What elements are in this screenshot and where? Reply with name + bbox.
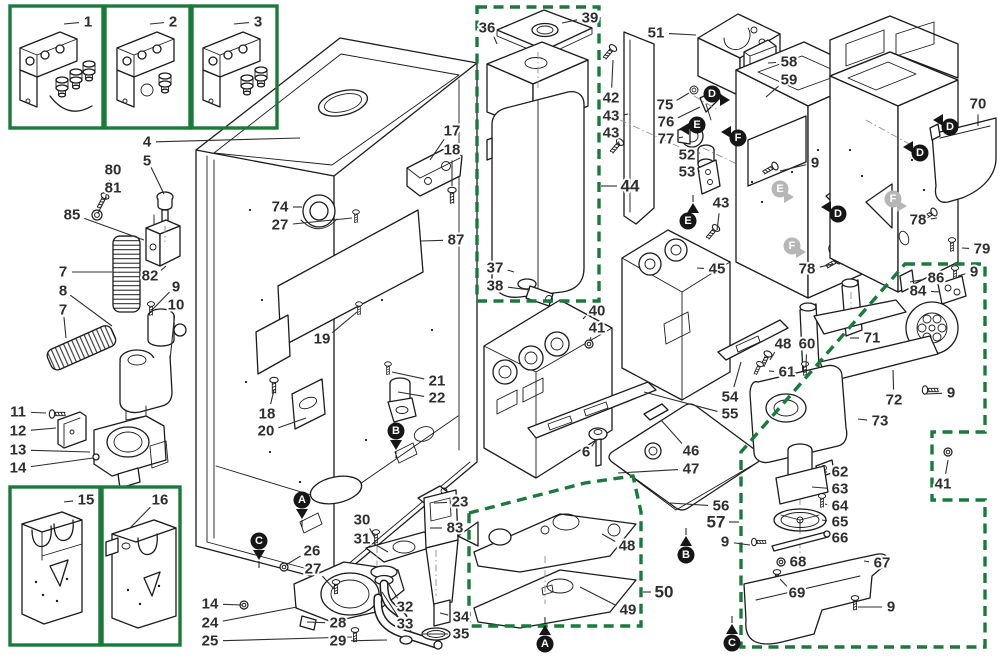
part-label-44: 44: [621, 177, 640, 196]
part-label-23: 23: [452, 494, 469, 511]
dispenser-tower-16: [106, 520, 176, 628]
part-label-20: 20: [258, 423, 275, 440]
part-label-50: 50: [655, 583, 674, 602]
part-label-11: 11: [10, 404, 26, 421]
part-label-82: 82: [142, 268, 159, 285]
leader-line: [421, 240, 443, 241]
part-label-86: 86: [928, 270, 945, 287]
ref-marker-letter: B: [392, 425, 400, 437]
part-label-29: 29: [330, 633, 347, 650]
part-label-14: 14: [10, 460, 27, 477]
ref-marker-letter: E: [684, 215, 691, 227]
leader-line: [307, 622, 325, 623]
leader-line: [925, 393, 942, 394]
part-label-59: 59: [781, 72, 798, 89]
part-label-4: 4: [143, 134, 152, 151]
part-label-43: 43: [603, 108, 620, 125]
part-label-45: 45: [709, 261, 726, 278]
ref-marker-letter: F: [789, 240, 796, 252]
part-label-70: 70: [970, 96, 987, 113]
part-label-79: 79: [974, 241, 991, 258]
part-label-71: 71: [864, 330, 881, 347]
leader-line: [893, 370, 894, 390]
ref-marker-letter: C: [255, 535, 263, 547]
part-label-75: 75: [657, 97, 674, 114]
part-label-49: 49: [620, 602, 637, 619]
part-label-26: 26: [304, 543, 321, 560]
part-label-43: 43: [713, 195, 730, 212]
part-label-1: 1: [84, 14, 92, 31]
ref-marker-letter: E: [776, 183, 783, 195]
part-label-3: 3: [254, 14, 262, 31]
part-label-78: 78: [799, 261, 816, 278]
ref-marker-letter: A: [541, 638, 549, 650]
part-label-19: 19: [314, 331, 331, 348]
part-label-25: 25: [202, 633, 219, 650]
part-label-18: 18: [259, 406, 276, 423]
part-label-10: 10: [168, 297, 185, 314]
part-label-9: 9: [887, 599, 895, 616]
part-label-69: 69: [789, 585, 806, 602]
ref-marker-letter: A: [298, 494, 306, 506]
part-label-31: 31: [354, 531, 371, 548]
ref-marker-letter: E: [693, 119, 700, 131]
part-label-85: 85: [64, 207, 81, 224]
part-label-81: 81: [105, 180, 122, 197]
part-label-13: 13: [10, 442, 27, 459]
part-label-9: 9: [811, 155, 819, 172]
part-label-41: 41: [935, 476, 952, 493]
part-label-48: 48: [775, 336, 792, 353]
part-label-35: 35: [453, 626, 470, 643]
part-label-34: 34: [453, 609, 470, 626]
part-label-87: 87: [448, 232, 465, 249]
part-label-27: 27: [272, 217, 289, 234]
part-label-30: 30: [354, 512, 371, 529]
ref-marker-letter: F: [890, 193, 897, 205]
part-label-15: 15: [78, 492, 95, 509]
leader-line: [223, 604, 242, 605]
part-label-36: 36: [479, 20, 496, 37]
part-label-62: 62: [832, 464, 849, 481]
part-label-42: 42: [603, 90, 620, 107]
part-label-9: 9: [172, 279, 180, 296]
part-label-38: 38: [487, 278, 504, 295]
part-label-18: 18: [444, 142, 461, 159]
part-label-32: 32: [397, 599, 414, 616]
part-label-80: 80: [105, 162, 122, 179]
ref-marker-letter: D: [834, 208, 842, 220]
part-label-52: 52: [679, 147, 696, 164]
part-label-54: 54: [722, 389, 739, 406]
ref-marker-letter: F: [735, 132, 742, 144]
part-label-58: 58: [781, 54, 798, 71]
dispenser-tower-15: [22, 512, 82, 624]
part-label-12: 12: [10, 423, 27, 440]
part-label-5: 5: [143, 153, 151, 170]
part-label-16: 16: [152, 492, 169, 509]
part-label-66: 66: [832, 530, 849, 547]
leader-line: [931, 291, 940, 292]
part-label-33: 33: [397, 616, 414, 633]
part-label-78: 78: [910, 212, 927, 229]
part-label-51: 51: [648, 25, 665, 42]
ref-marker-letter: B: [682, 549, 690, 561]
part-label-6: 6: [582, 444, 590, 461]
ref-marker-letter: D: [708, 88, 716, 100]
part-label-57: 57: [707, 513, 726, 532]
part-label-48: 48: [619, 538, 636, 555]
part-label-47: 47: [683, 461, 700, 478]
part-label-14: 14: [202, 596, 219, 613]
part-label-41: 41: [589, 320, 606, 337]
part-label-9: 9: [721, 534, 729, 551]
leader-line: [825, 504, 827, 505]
part-label-64: 64: [832, 498, 849, 515]
part-label-46: 46: [683, 443, 700, 460]
part-label-17: 17: [444, 123, 461, 140]
part-label-2: 2: [169, 14, 177, 31]
parts-diagram-canvas: 1234580818582787910111213141516171874278…: [0, 0, 1000, 658]
ref-marker-letter: C: [728, 637, 736, 649]
part-label-77: 77: [658, 131, 675, 148]
part-label-8: 8: [59, 283, 67, 300]
leader-line: [768, 62, 776, 63]
part-label-53: 53: [679, 164, 696, 181]
part-label-65: 65: [832, 514, 849, 531]
part-label-73: 73: [872, 413, 889, 430]
part-label-21: 21: [429, 373, 446, 390]
leader-line: [679, 137, 683, 138]
part-label-55: 55: [722, 406, 739, 423]
part-label-22: 22: [429, 390, 446, 407]
part-label-24: 24: [202, 615, 219, 632]
leader-line: [624, 114, 628, 115]
part-label-61: 61: [779, 364, 796, 381]
part-label-7: 7: [59, 264, 67, 281]
part-label-67: 67: [874, 555, 891, 572]
ref-marker-letter: D: [916, 147, 924, 159]
part-label-74: 74: [272, 199, 289, 216]
part-label-83: 83: [447, 520, 464, 537]
parts-diagram-page: 1234580818582787910111213141516171874278…: [0, 0, 1000, 658]
part-label-39: 39: [582, 10, 599, 27]
ref-marker-letter: D: [946, 121, 954, 133]
part-label-37: 37: [487, 260, 504, 277]
part-label-27: 27: [305, 561, 322, 578]
part-label-84: 84: [910, 283, 927, 300]
leader-line: [434, 502, 447, 503]
part-label-9: 9: [970, 264, 978, 281]
part-label-63: 63: [832, 481, 849, 498]
part-label-9: 9: [947, 385, 955, 402]
part-label-76: 76: [658, 114, 675, 131]
part-label-68: 68: [790, 554, 807, 571]
part-label-72: 72: [886, 392, 903, 409]
part-label-7: 7: [59, 302, 67, 319]
part-label-40: 40: [589, 303, 606, 320]
part-label-43: 43: [603, 125, 620, 142]
leader-line: [31, 412, 46, 413]
part-label-60: 60: [799, 336, 816, 353]
part-label-28: 28: [330, 615, 347, 632]
